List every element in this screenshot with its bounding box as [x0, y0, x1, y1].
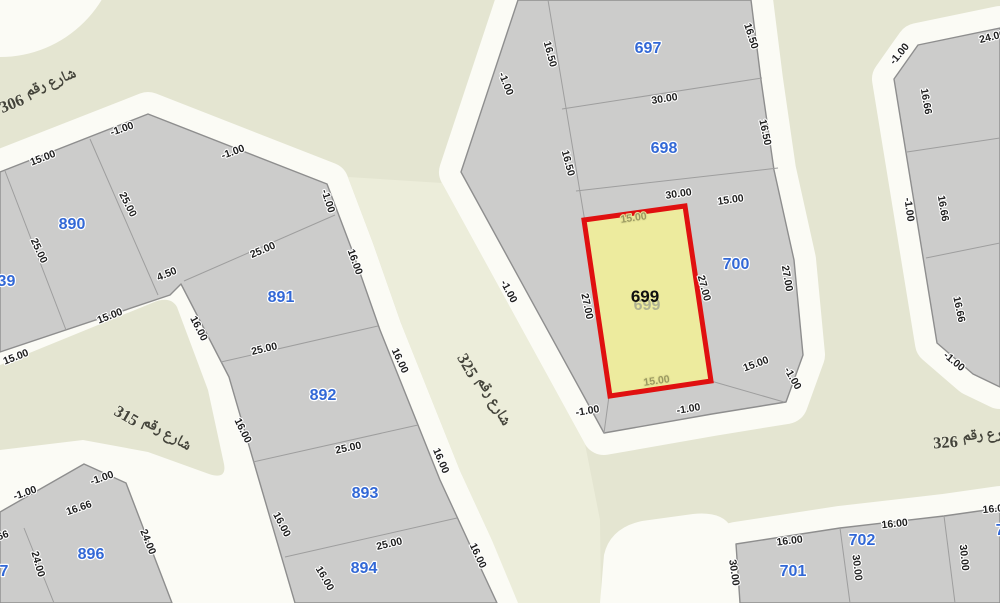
svg-text:326: 326 — [932, 432, 958, 453]
svg-text:892: 892 — [310, 387, 337, 404]
svg-text:894: 894 — [351, 560, 378, 577]
svg-text:705: 705 — [996, 522, 1000, 539]
svg-text:891: 891 — [268, 289, 295, 306]
svg-text:699: 699 — [631, 287, 659, 306]
svg-text:16.00: 16.00 — [982, 502, 1000, 516]
svg-text:702: 702 — [849, 532, 876, 549]
svg-text:890: 890 — [59, 216, 86, 233]
svg-text:697: 697 — [635, 40, 662, 57]
svg-text:839: 839 — [0, 273, 15, 290]
svg-text:700: 700 — [723, 256, 750, 273]
svg-text:698: 698 — [651, 140, 678, 157]
svg-text:701: 701 — [780, 563, 807, 580]
svg-text:897: 897 — [0, 563, 8, 580]
svg-text:893: 893 — [352, 485, 379, 502]
svg-text:896: 896 — [78, 546, 105, 563]
